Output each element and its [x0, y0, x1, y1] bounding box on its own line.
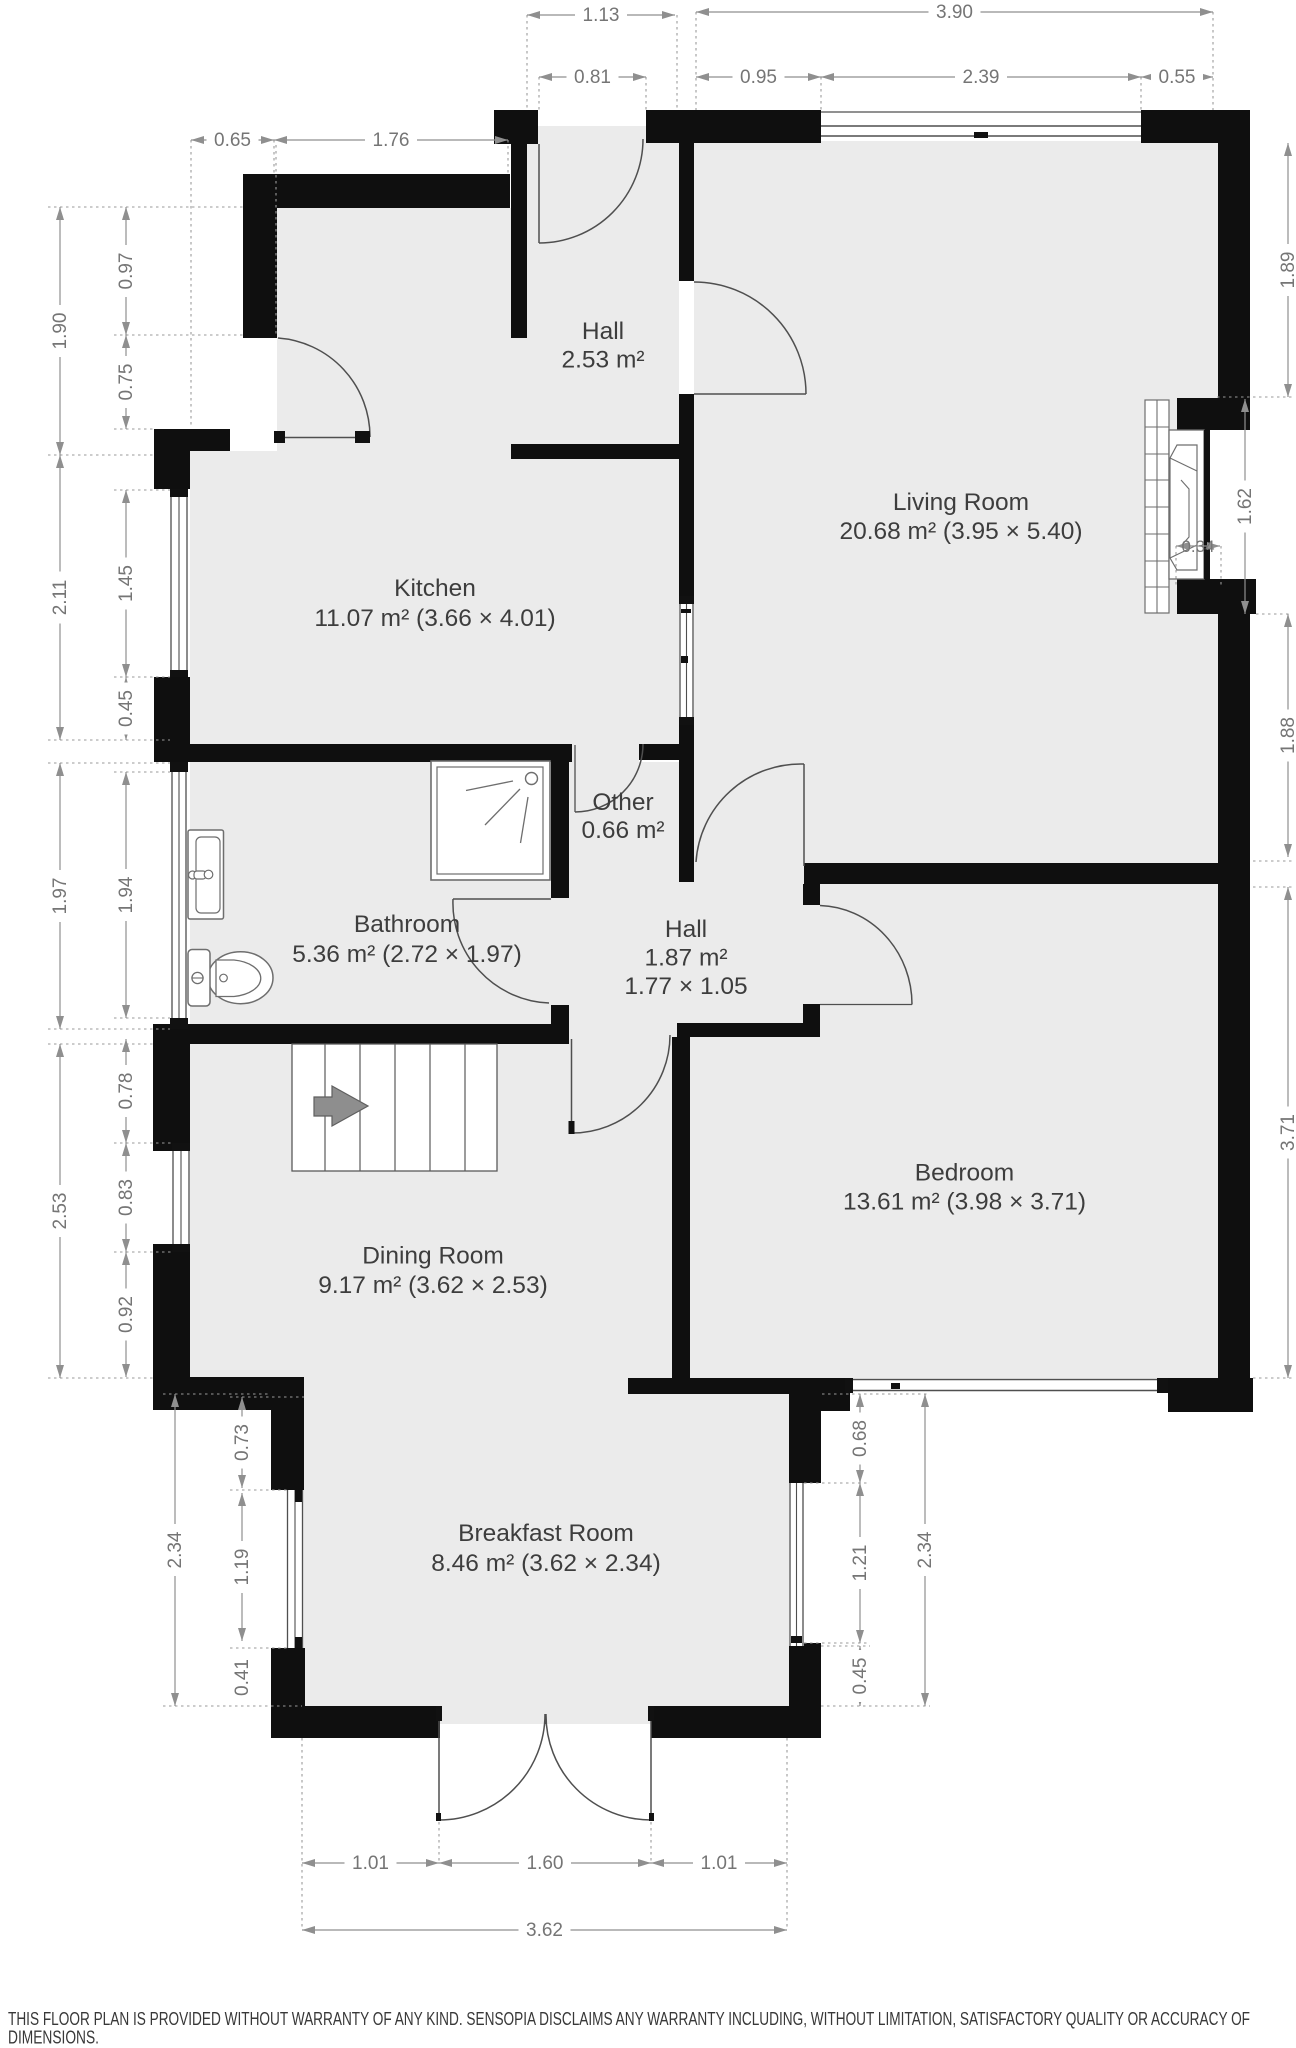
svg-text:Kitchen: Kitchen — [394, 575, 476, 602]
svg-text:3.71: 3.71 — [1278, 1114, 1296, 1151]
svg-text:3.90: 3.90 — [936, 2, 973, 23]
svg-text:0.41: 0.41 — [232, 1659, 253, 1696]
svg-text:0.95: 0.95 — [740, 67, 777, 88]
svg-text:0.92: 0.92 — [116, 1296, 137, 1333]
svg-text:0.66 m²: 0.66 m² — [581, 817, 664, 844]
svg-text:1.13: 1.13 — [583, 5, 620, 26]
svg-text:Dining Room: Dining Room — [362, 1243, 504, 1270]
svg-text:11.07 m² (3.66 × 4.01): 11.07 m² (3.66 × 4.01) — [314, 605, 555, 632]
svg-text:Other: Other — [592, 789, 653, 816]
svg-text:Hall: Hall — [665, 916, 707, 943]
svg-text:1.01: 1.01 — [701, 1853, 738, 1874]
svg-text:Hall: Hall — [582, 318, 624, 345]
svg-text:2.34: 2.34 — [165, 1531, 186, 1568]
svg-text:2.34: 2.34 — [915, 1531, 936, 1568]
svg-text:Living Room: Living Room — [893, 489, 1029, 516]
svg-text:1.97: 1.97 — [50, 878, 71, 915]
svg-text:1.21: 1.21 — [850, 1545, 871, 1582]
svg-text:Breakfast Room: Breakfast Room — [458, 1520, 634, 1547]
svg-text:2.39: 2.39 — [963, 67, 1000, 88]
svg-text:1.90: 1.90 — [50, 313, 71, 350]
svg-text:1.01: 1.01 — [352, 1853, 389, 1874]
svg-text:8.46 m² (3.62 × 2.34): 8.46 m² (3.62 × 2.34) — [431, 1550, 660, 1577]
svg-text:0.78: 0.78 — [116, 1073, 137, 1110]
svg-text:0.81: 0.81 — [574, 67, 611, 88]
svg-text:THIS FLOOR PLAN IS PROVIDED WI: THIS FLOOR PLAN IS PROVIDED WITHOUT WARR… — [8, 2008, 1250, 2029]
svg-text:13.61 m² (3.98 × 3.71): 13.61 m² (3.98 × 3.71) — [843, 1189, 1086, 1216]
svg-text:9.17 m² (3.62 × 2.53): 9.17 m² (3.62 × 2.53) — [318, 1272, 547, 1299]
svg-text:0.65: 0.65 — [214, 130, 251, 151]
svg-text:20.68 m² (3.95 × 5.40): 20.68 m² (3.95 × 5.40) — [839, 518, 1082, 545]
svg-text:0.55: 0.55 — [1159, 67, 1196, 88]
svg-text:1.60: 1.60 — [527, 1853, 564, 1874]
svg-text:2.11: 2.11 — [50, 580, 71, 616]
svg-text:0.45: 0.45 — [850, 1658, 871, 1695]
svg-text:0.45: 0.45 — [116, 690, 137, 727]
svg-text:5.36 m² (2.72 × 1.97): 5.36 m² (2.72 × 1.97) — [292, 941, 521, 968]
svg-text:1.45: 1.45 — [116, 565, 137, 602]
svg-text:1.87 m²: 1.87 m² — [644, 945, 727, 972]
svg-text:1.89: 1.89 — [1278, 252, 1296, 289]
svg-text:2.53 m²: 2.53 m² — [561, 347, 644, 374]
svg-text:0.34: 0.34 — [1181, 537, 1214, 556]
svg-text:1.77 × 1.05: 1.77 × 1.05 — [624, 973, 747, 1000]
svg-text:1.62: 1.62 — [1235, 488, 1256, 525]
svg-text:3.62: 3.62 — [526, 1920, 563, 1941]
svg-text:0.83: 0.83 — [116, 1179, 137, 1216]
svg-text:0.75: 0.75 — [116, 364, 137, 401]
svg-text:0.68: 0.68 — [850, 1420, 871, 1457]
svg-text:0.73: 0.73 — [232, 1424, 253, 1461]
svg-text:1.94: 1.94 — [116, 876, 137, 913]
svg-text:0.97: 0.97 — [116, 253, 137, 290]
svg-text:1.88: 1.88 — [1278, 717, 1296, 754]
svg-text:DIMENSIONS.: DIMENSIONS. — [8, 2027, 99, 2048]
svg-text:2.53: 2.53 — [50, 1193, 71, 1230]
svg-text:1.76: 1.76 — [373, 130, 410, 151]
svg-text:Bedroom: Bedroom — [915, 1160, 1014, 1187]
svg-text:1.19: 1.19 — [232, 1549, 253, 1586]
svg-text:Bathroom: Bathroom — [354, 911, 460, 938]
